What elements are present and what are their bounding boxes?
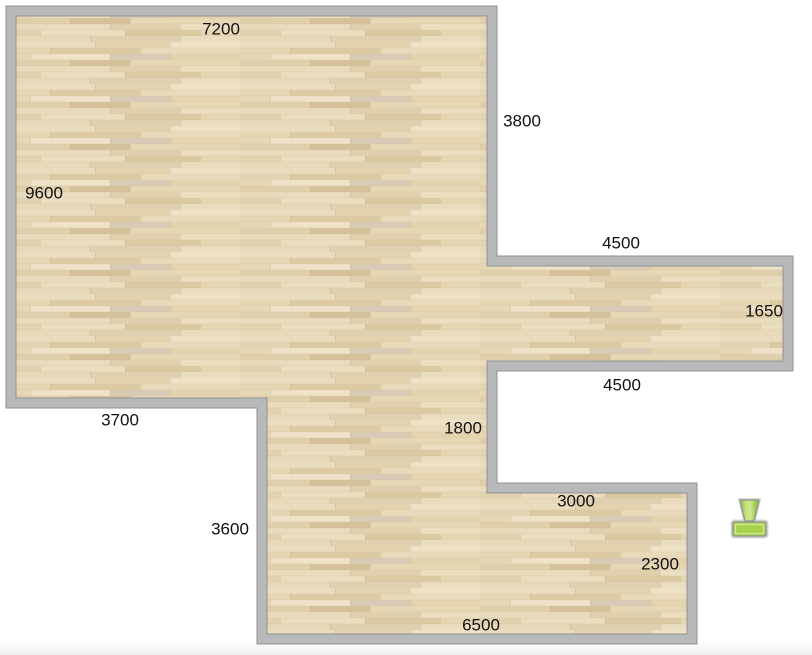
dimension-label-top-wall: 7200 [202,20,240,39]
dimension-label-bottom-ext-top-wall: 3000 [557,492,595,511]
dimension-label-right-ext-top-wall: 4500 [602,234,640,253]
dimension-label-middle-wall: 1800 [444,419,482,438]
floor-plan-canvas: 7200 3800 9600 4500 1650 4500 3700 1800 … [0,0,812,655]
dimension-label-upper-right-wall: 3800 [503,112,541,131]
dimension-label-bottom-ext-right-wall: 2300 [641,555,679,574]
dimension-label-bottom-wall: 6500 [462,616,500,635]
dimension-label-left-wall: 9600 [25,184,63,203]
dimension-label-lower-left-wall: 3700 [101,411,139,430]
dimension-label-bottom-left-wall: 3600 [211,520,249,539]
dimension-label-right-ext-bottom-wall: 4500 [603,376,641,395]
dimension-label-right-ext-right-wall: 1650 [745,302,783,321]
plan-view: 7200 3800 9600 4500 1650 4500 3700 1800 … [0,0,812,655]
